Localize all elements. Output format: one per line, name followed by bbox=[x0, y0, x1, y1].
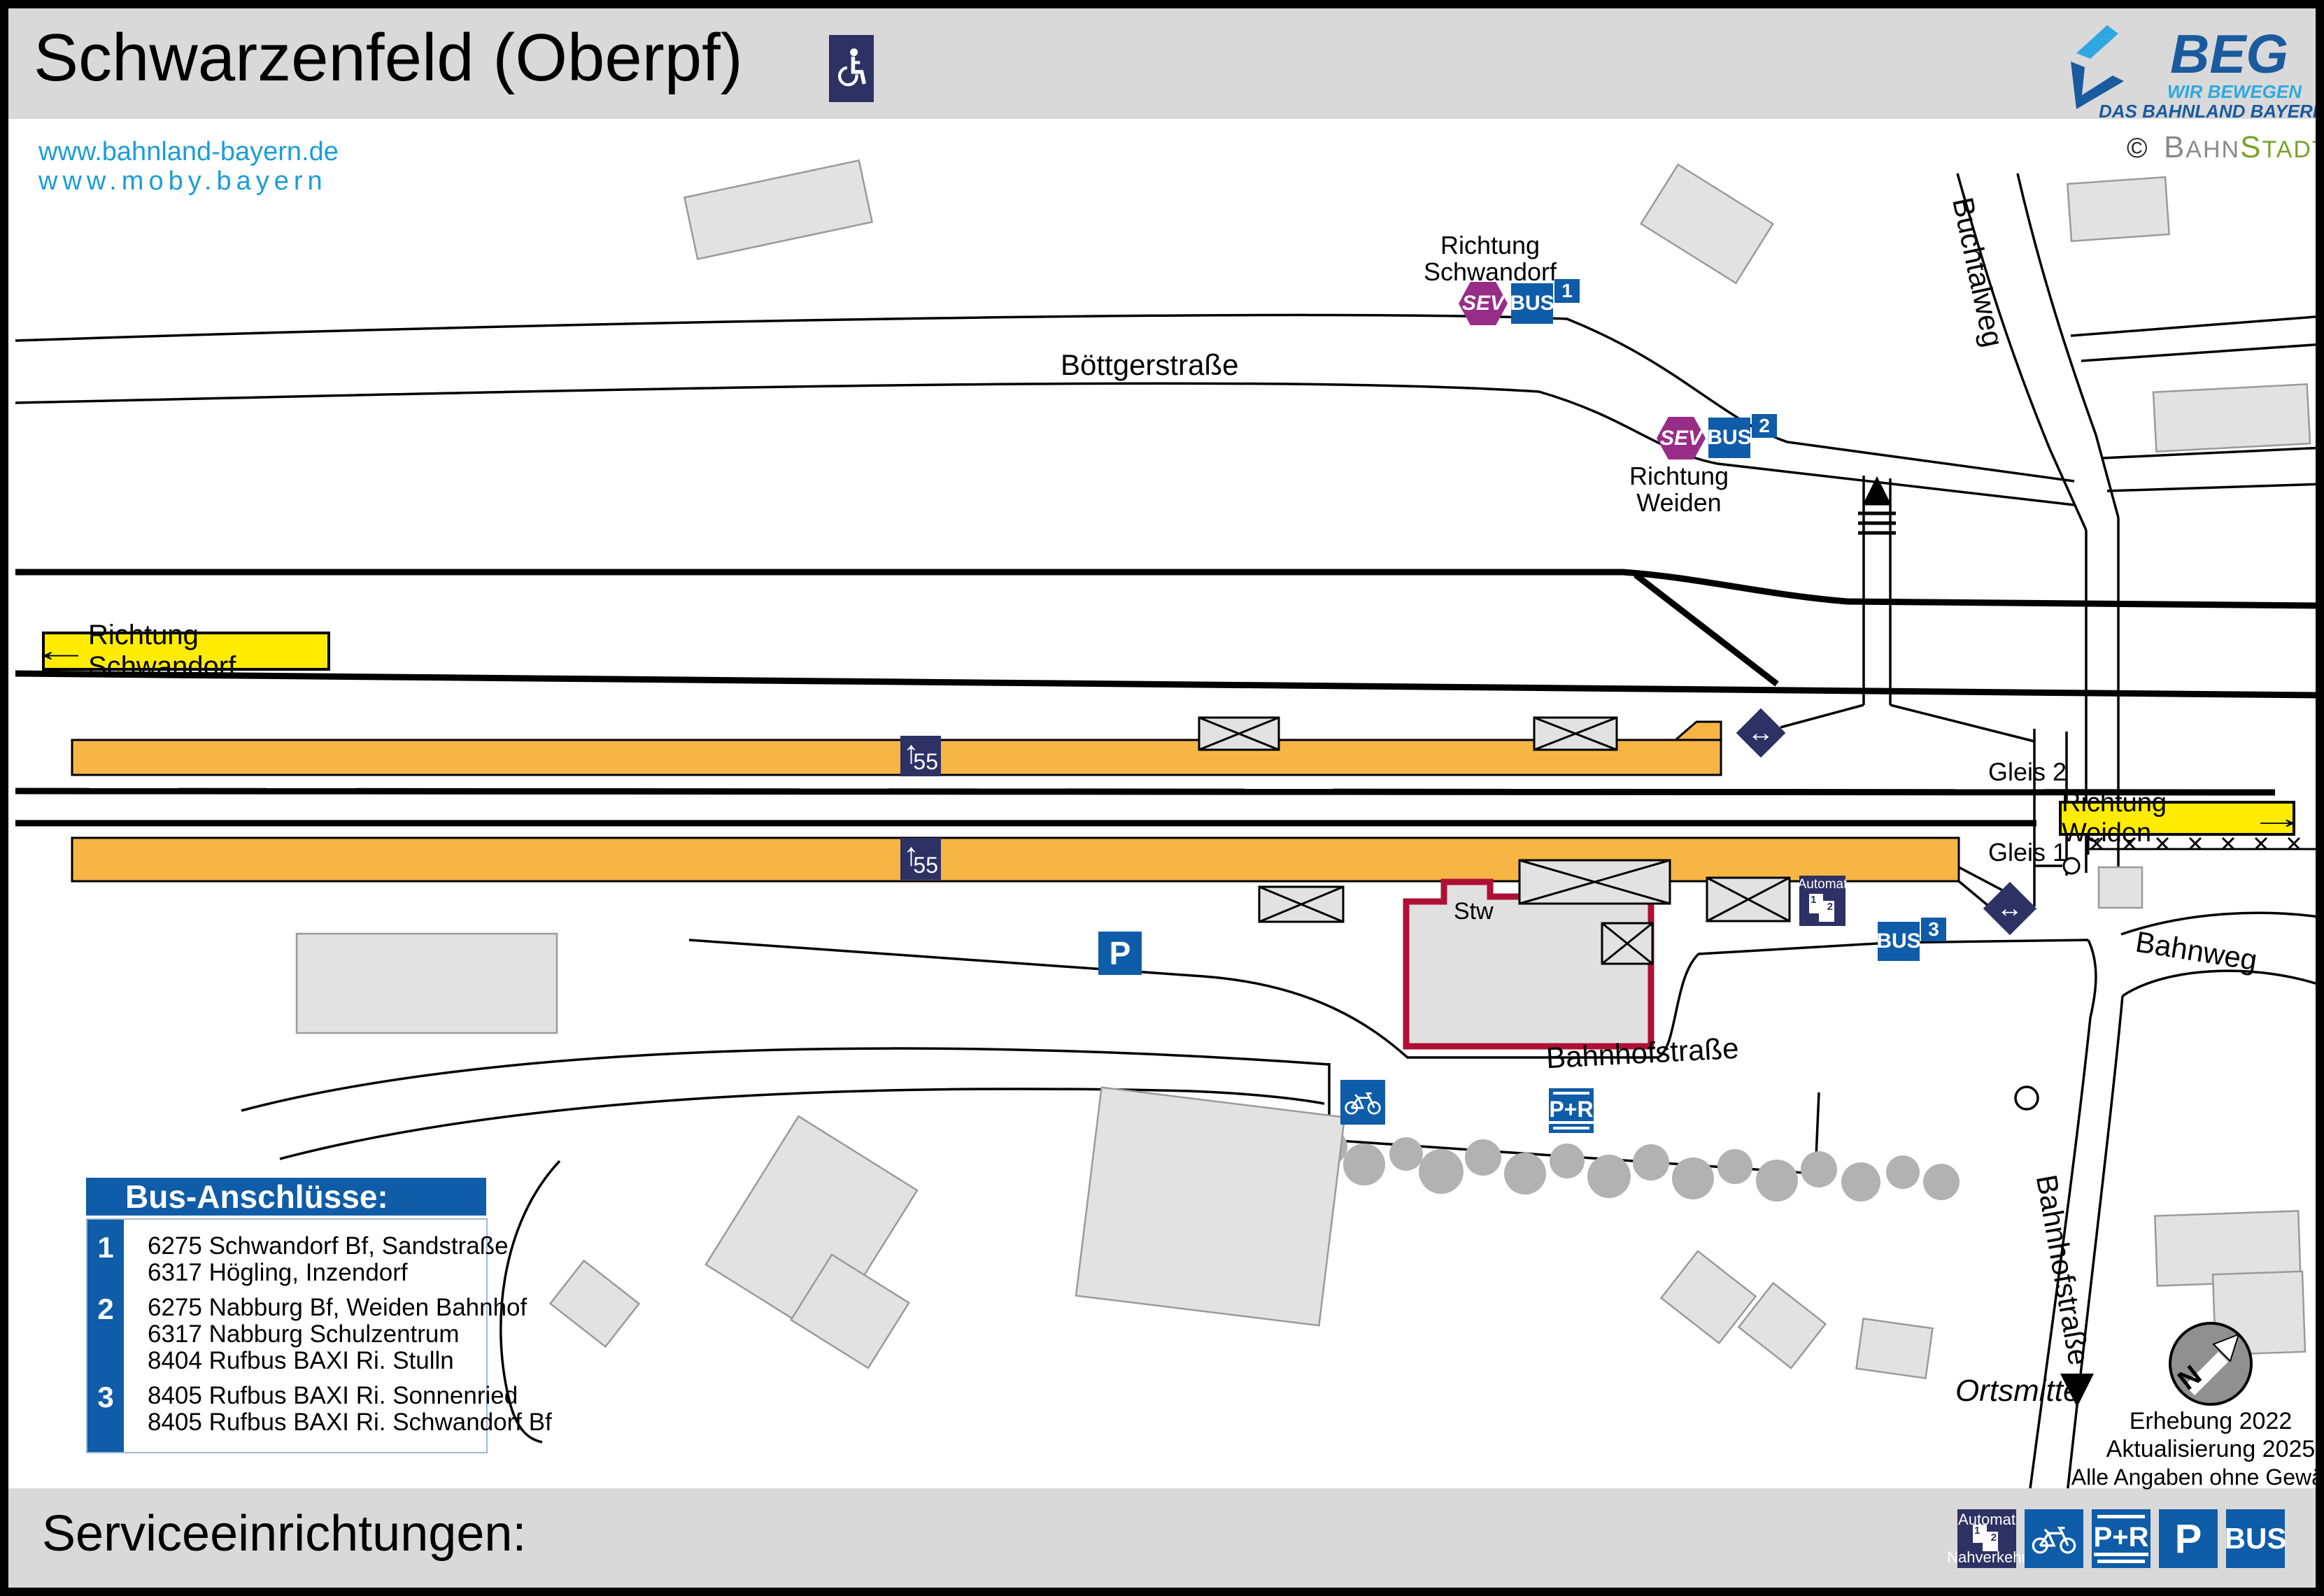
platform2-height-value: 55 bbox=[913, 749, 938, 775]
legend-line: 8404 Rufbus BAXI Ri. Stulln bbox=[148, 1347, 454, 1375]
beg-tagline-2: DAS BAHNLAND BAYERN bbox=[2099, 101, 2302, 122]
park-ride-icon-map: P+R bbox=[1549, 1088, 1594, 1133]
parking-icon-map: P bbox=[1098, 932, 1142, 975]
beg-abbr: BEG bbox=[2170, 22, 2288, 86]
wheelchair-icon bbox=[829, 35, 874, 102]
station-map-page: Schwarzenfeld (Oberpf) BEG WIR BEWEGEN D… bbox=[0, 0, 2324, 1596]
legend-title: Bus-Anschlüsse: bbox=[86, 1178, 486, 1216]
stw-label: Stw bbox=[1454, 898, 1494, 925]
platforms bbox=[72, 722, 1959, 881]
link-bahnland-bayern[interactable]: www.bahnland-bayern.de bbox=[38, 137, 339, 167]
bicycle-glyph bbox=[2031, 1523, 2077, 1554]
stop1-direction-label: Richtung Schwandorf bbox=[1396, 232, 1585, 285]
track-label-gleis1: Gleis 1 bbox=[1988, 838, 2067, 867]
link-moby-bayern[interactable]: www.moby.bayern bbox=[38, 166, 327, 197]
beg-tagline-1: WIR BEWEGEN bbox=[2127, 81, 2302, 103]
hedge bbox=[1311, 1129, 1960, 1202]
legend-line: 6275 Nabburg Bf, Weiden Bahnhof bbox=[148, 1294, 527, 1322]
ticket-machine-label: Automat bbox=[1798, 877, 1848, 892]
bahnstadt-credit: © BAHNSTADT bbox=[2127, 130, 2324, 165]
stop2-direction-label: Richtung Weiden bbox=[1616, 463, 1742, 516]
credit-bahn-rest: AHN bbox=[2185, 136, 2240, 163]
credit-stadt-initial: S bbox=[2240, 130, 2262, 164]
survey-notes: Erhebung 2022 Aktualisierung 2025 Alle A… bbox=[2071, 1407, 2324, 1491]
direction-sign-schwandorf-label: Richtung Schwandorf bbox=[88, 620, 327, 683]
double-arrow-icon: ↔ bbox=[1748, 718, 1774, 748]
machine-2: 2 bbox=[1983, 1532, 1998, 1551]
ramp-access-icon-gleis1: ↔ bbox=[1991, 890, 2029, 927]
street-label-boettgerstrasse: Böttgerstraße bbox=[1061, 348, 1238, 382]
bus-badge-stop3: BUS bbox=[1878, 922, 1920, 961]
wheelchair-glyph bbox=[836, 43, 867, 94]
stop2-number-badge: 2 bbox=[1752, 414, 1777, 438]
ticket-machine-glyph: 1 2 bbox=[1799, 892, 1845, 925]
bike-parking-icon-map bbox=[1340, 1080, 1385, 1125]
credit-copyright: © bbox=[2127, 133, 2148, 164]
stop2-direction-line1: Richtung bbox=[1616, 463, 1742, 490]
bus-badge-stop2: BUS bbox=[1708, 418, 1750, 458]
direction-sign-weiden: Richtung Weiden → bbox=[2059, 801, 2295, 836]
legend-line: 8405 Rufbus BAXI Ri. Schwandorf Bf bbox=[148, 1409, 552, 1437]
parking-icon-footer: P bbox=[2159, 1509, 2218, 1568]
stop1-direction-line1: Richtung bbox=[1396, 232, 1585, 259]
track-label-gleis2: Gleis 2 bbox=[1988, 757, 2067, 787]
credit-bahn-initial: B bbox=[2164, 130, 2185, 164]
bike-parking-icon-footer bbox=[2025, 1509, 2083, 1568]
page-title: Schwarzenfeld (Oberpf) bbox=[34, 20, 743, 97]
machine-2: 2 bbox=[1819, 901, 1834, 922]
survey-year: Erhebung 2022 bbox=[2071, 1407, 2324, 1435]
stop2-direction-line2: Weiden bbox=[1616, 490, 1742, 516]
ticket-machine-icon-platform: Automat 1 2 bbox=[1799, 876, 1845, 926]
platform1-height-marker: ↑ 55 bbox=[900, 838, 941, 880]
legend-number-1: 1 bbox=[87, 1231, 124, 1264]
bus-badge-stop1: BUS bbox=[1511, 283, 1553, 324]
double-arrow-icon: ↔ bbox=[1997, 894, 2023, 924]
park-ride-label: P+R bbox=[1549, 1097, 1593, 1124]
direction-sign-schwandorf: ← Richtung Schwandorf bbox=[42, 632, 330, 671]
left-arrow-icon: ← bbox=[29, 634, 91, 669]
park-ride-icon-footer: P+R bbox=[2092, 1509, 2151, 1568]
ticket-machine-glyph: 1 2 bbox=[1957, 1529, 2016, 1548]
disclaimer: Alle Angaben ohne Gewähr! bbox=[2071, 1463, 2324, 1491]
ortsmitte-arrow-icon bbox=[2060, 1374, 2094, 1407]
legend-number-3: 3 bbox=[87, 1381, 124, 1414]
platform1-height-value: 55 bbox=[913, 853, 938, 878]
footer-pr-label: P+R bbox=[2094, 1522, 2149, 1556]
bus-connections-legend: Bus-Anschlüsse: 1 6275 Schwandorf Bf, Sa… bbox=[86, 1178, 488, 1453]
legend-line: 8405 Rufbus BAXI Ri. Sonnenried bbox=[148, 1382, 518, 1410]
update-year: Aktualisierung 2025 bbox=[2071, 1435, 2324, 1463]
ticket-machine-icon-footer: Automat 1 2 Nahverkehr bbox=[1957, 1509, 2016, 1568]
direction-sign-weiden-label: Richtung Weiden bbox=[2062, 788, 2251, 848]
stop3-number-badge: 3 bbox=[1921, 918, 1946, 941]
right-arrow-icon: → bbox=[2248, 801, 2307, 835]
railway-tracks bbox=[15, 572, 2316, 823]
legend-body: 1 6275 Schwandorf Bf, Sandstraße 6317 Hö… bbox=[86, 1218, 488, 1453]
legend-number-2: 2 bbox=[87, 1292, 124, 1326]
ramp-access-icon-gleis2: ↔ bbox=[1743, 715, 1778, 750]
legend-line: 6317 Högling, Inzendorf bbox=[148, 1259, 408, 1287]
credit-stadt-rest: TADT bbox=[2262, 136, 2324, 163]
footer-automat-label: Automat bbox=[1958, 1511, 2015, 1529]
bus-icon-footer: BUS bbox=[2226, 1509, 2285, 1568]
legend-line: 6317 Nabburg Schulzentrum bbox=[148, 1320, 460, 1348]
legend-line: 6275 Schwandorf Bf, Sandstraße bbox=[148, 1232, 509, 1260]
platform2-height-marker: ↑ 55 bbox=[900, 736, 941, 776]
bicycle-glyph bbox=[1344, 1090, 1382, 1115]
stop1-number-badge: 1 bbox=[1554, 279, 1580, 303]
footer-label: Serviceeinrichtungen: bbox=[42, 1505, 526, 1562]
